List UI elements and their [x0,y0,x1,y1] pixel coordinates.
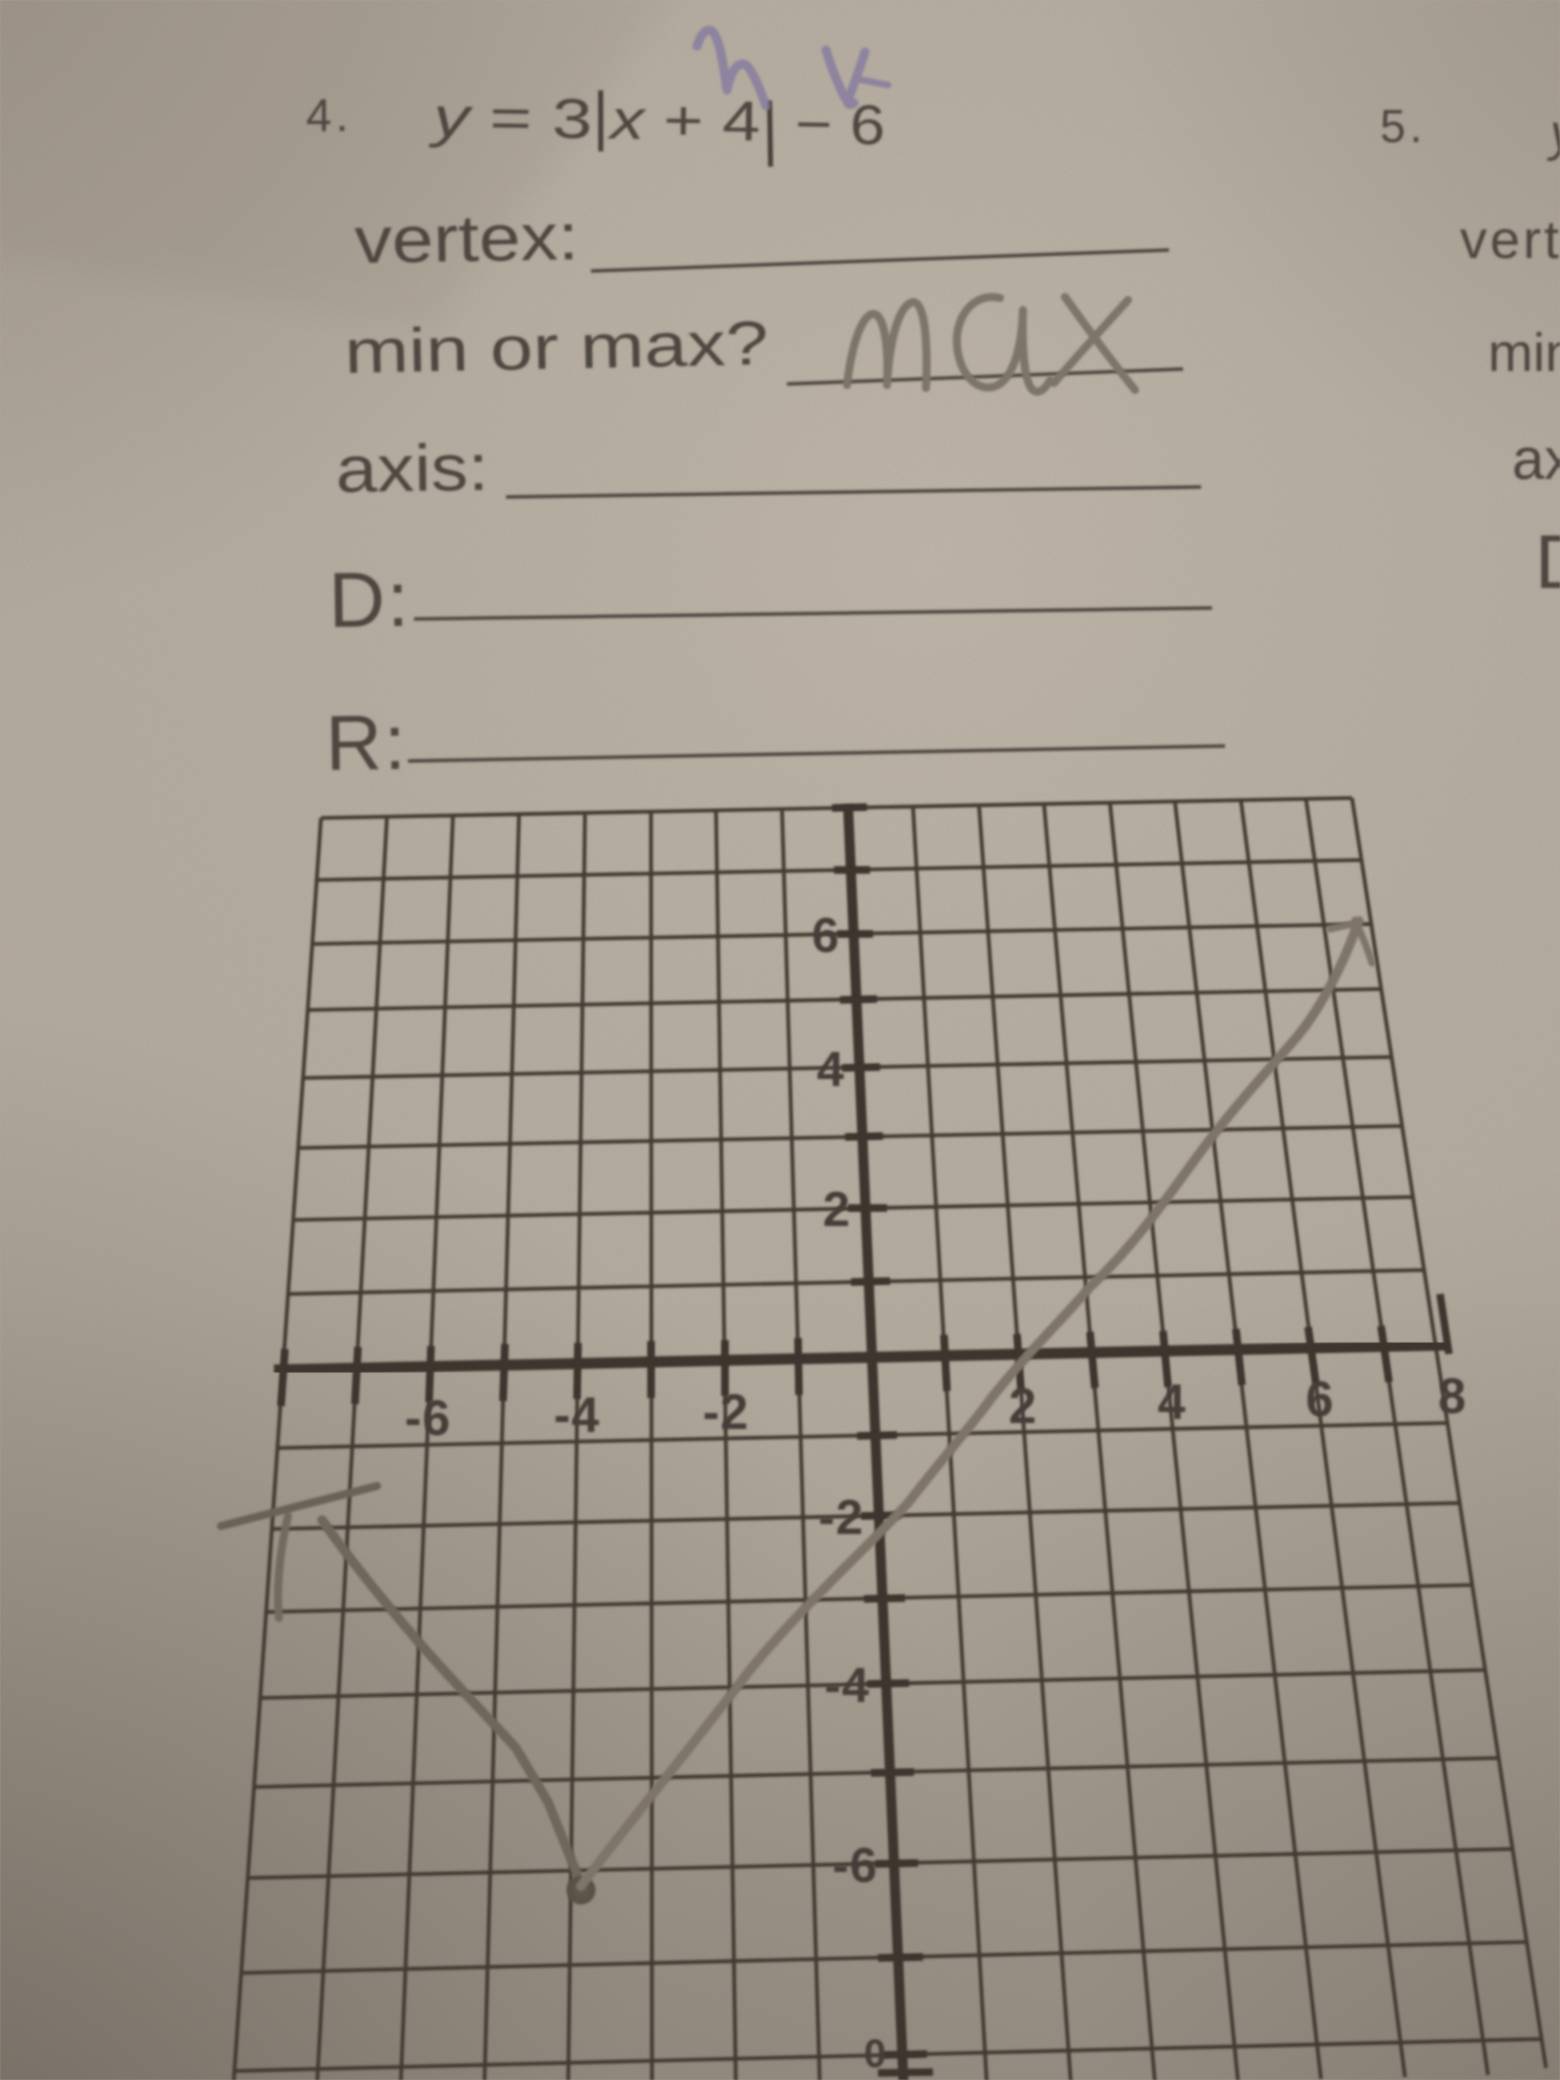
svg-text:-2: -2 [818,1491,864,1545]
svg-text:2: 2 [823,1183,851,1237]
svg-text:vertex:: vertex: [354,199,579,277]
svg-text:-4: -4 [554,1387,600,1443]
svg-text:x + 4: x + 4 [606,87,761,152]
svg-text:0: 0 [864,2032,886,2076]
svg-text:-2: -2 [703,1384,749,1440]
svg-text:ax: ax [1512,427,1560,492]
svg-text:4.: 4. [306,89,352,141]
svg-text:2: 2 [1009,1378,1038,1434]
svg-text:vert: vert [1460,210,1560,270]
svg-text:5.: 5. [1380,100,1426,152]
svg-text:-6: -6 [832,1839,878,1893]
svg-text:min or max?: min or max? [344,309,769,387]
svg-text:4: 4 [817,1043,845,1097]
svg-text:y = 3: y = 3 [428,85,593,150]
svg-text:D:: D: [328,555,411,644]
svg-text:R:: R: [325,698,408,787]
svg-text:6: 6 [812,909,840,963]
svg-text:min: min [1488,323,1560,383]
svg-text:6: 6 [1306,1371,1335,1427]
svg-text:-6: -6 [405,1390,451,1446]
svg-text:D: D [1535,520,1560,605]
svg-text:axis:: axis: [335,430,489,506]
svg-text:8: 8 [1438,1368,1466,1424]
svg-text:− 6: − 6 [795,92,886,156]
svg-text:4: 4 [1158,1374,1187,1430]
svg-text:-4: -4 [824,1659,870,1713]
